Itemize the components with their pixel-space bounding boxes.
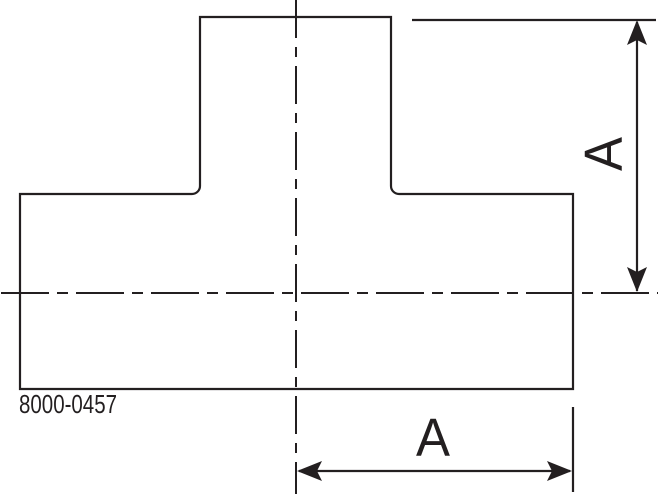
vertical-dimension-label: A — [574, 137, 634, 171]
horizontal-dimension-label: A — [416, 408, 450, 468]
tee-fitting-drawing: A A 8000-0457 — [0, 0, 660, 494]
part-number-label: 8000-0457 — [19, 389, 117, 419]
technical-drawing-canvas: A A 8000-0457 — [0, 0, 660, 494]
